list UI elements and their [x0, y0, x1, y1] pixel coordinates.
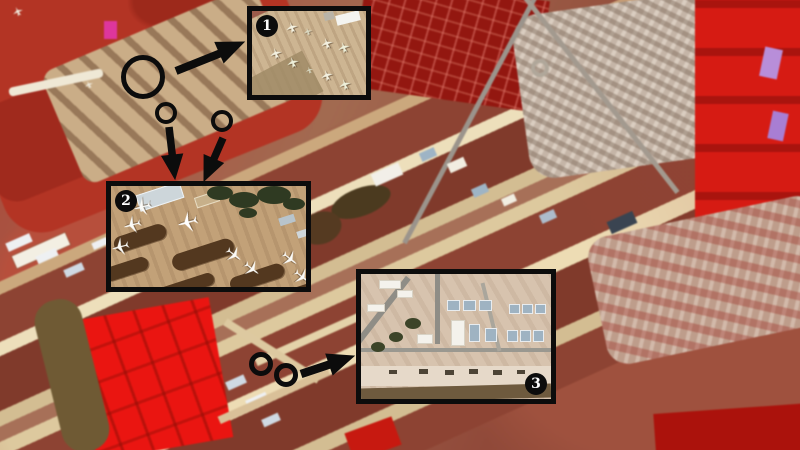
annotation-arrows — [0, 0, 800, 450]
arrow-to-inset-2-right — [204, 138, 223, 181]
inset-1-badge: 1 — [256, 15, 278, 37]
arrow-to-inset-1 — [176, 42, 244, 71]
arrow-to-inset-2-left — [162, 127, 183, 179]
arrow-to-inset-3 — [301, 354, 354, 375]
satellite-map: 1 2 — [0, 0, 800, 450]
inset-3-badge: 3 — [525, 373, 547, 395]
inset-2-badge: 2 — [115, 190, 137, 212]
